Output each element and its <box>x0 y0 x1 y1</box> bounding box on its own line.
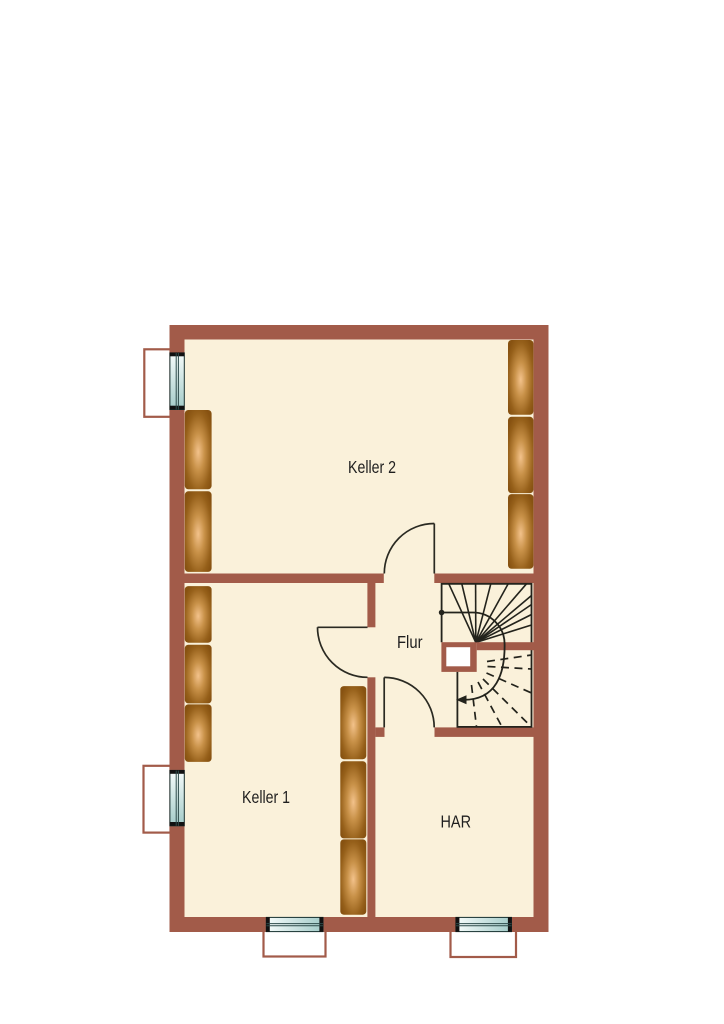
svg-text:Flur: Flur <box>397 632 423 652</box>
svg-text:Keller 1: Keller 1 <box>242 787 290 807</box>
svg-text:HAR: HAR <box>441 812 472 832</box>
svg-text:Keller 2: Keller 2 <box>348 457 396 477</box>
